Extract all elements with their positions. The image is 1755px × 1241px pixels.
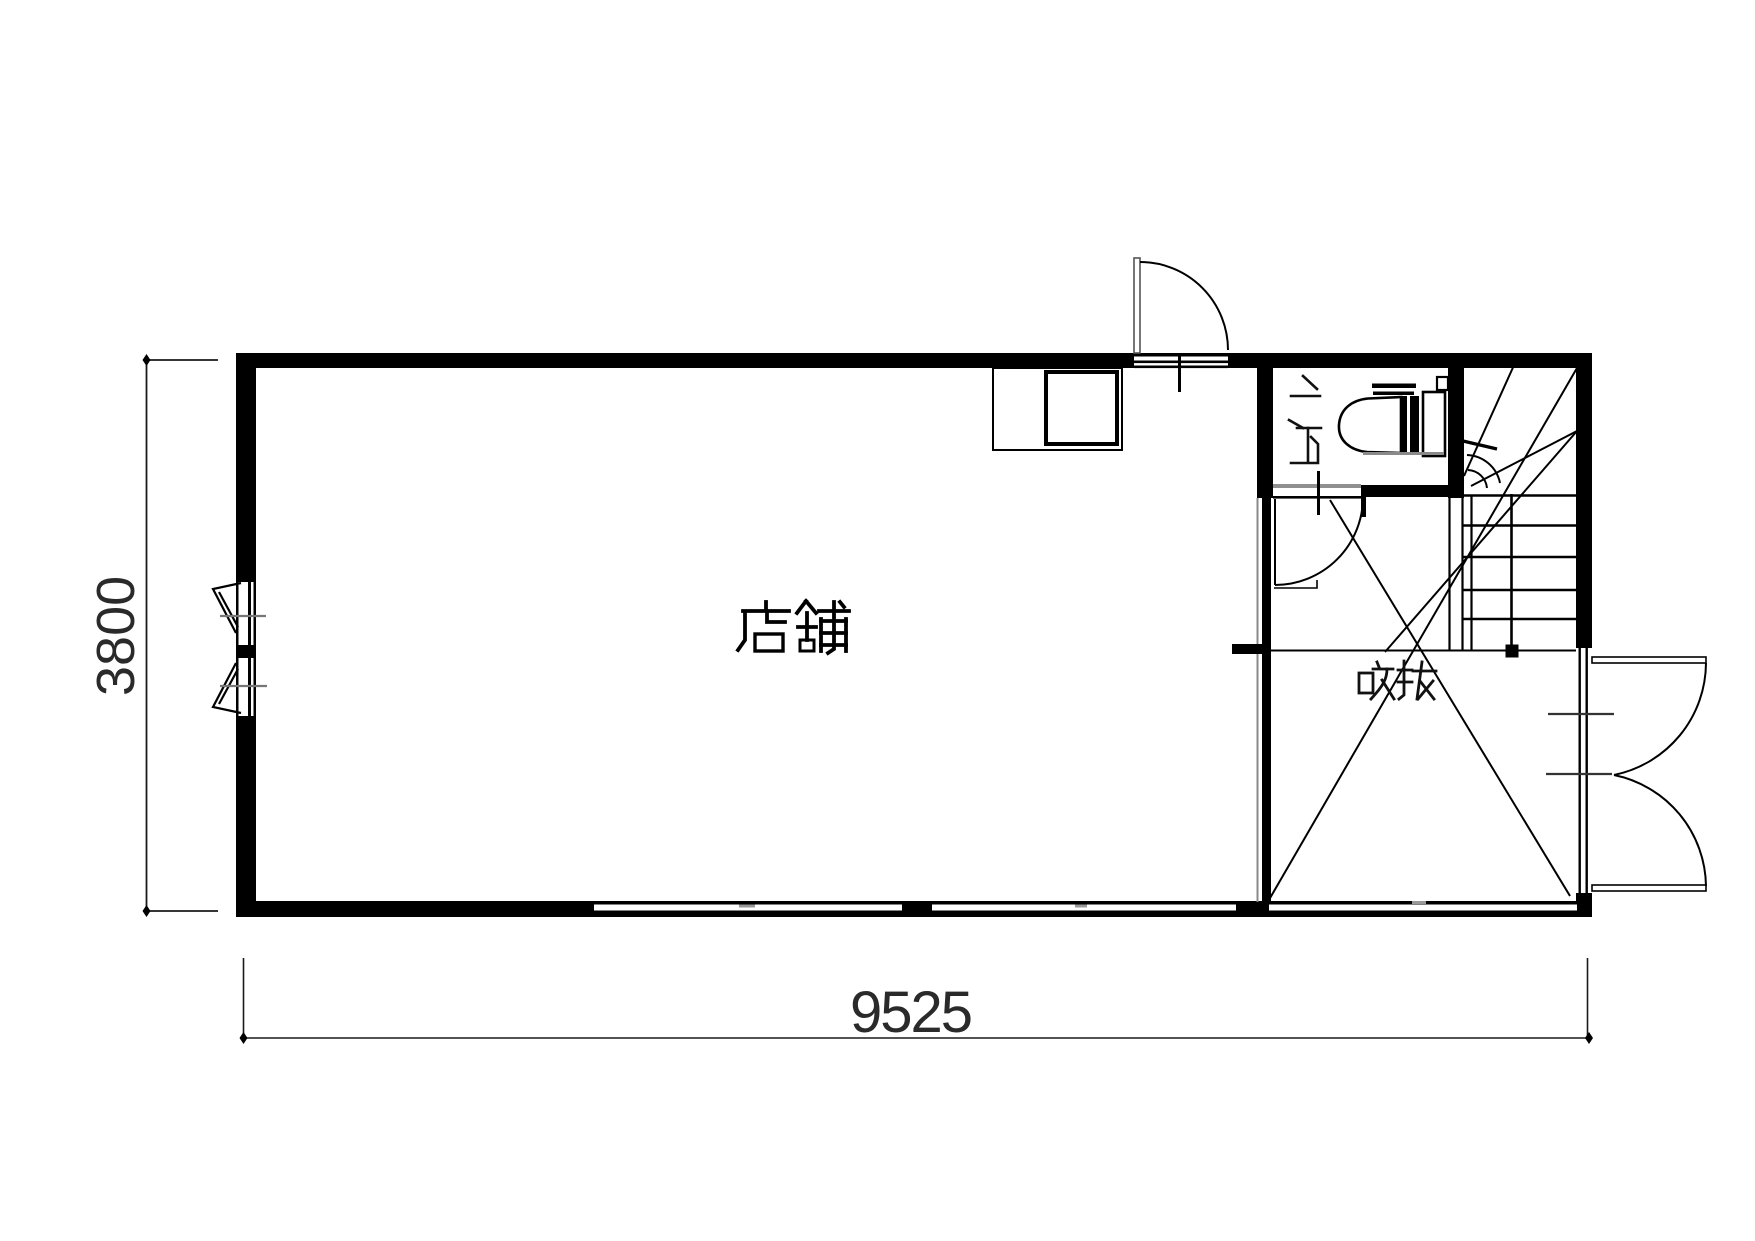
svg-text:3800: 3800 bbox=[86, 576, 146, 696]
svg-text:9525: 9525 bbox=[850, 980, 971, 1045]
